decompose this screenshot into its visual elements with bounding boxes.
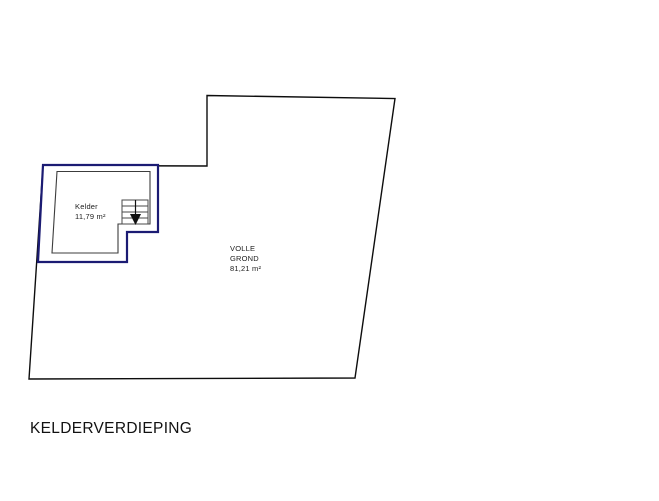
stairs-down-icon — [122, 200, 148, 225]
volle-grond-name-line1: VOLLE — [230, 244, 255, 253]
floorplan-page: Kelder 11,79 m² VOLLE GROND 81,21 m² KEL… — [0, 0, 659, 501]
kelder-area: 11,79 m² — [75, 212, 106, 221]
floorplan-drawing: Kelder 11,79 m² VOLLE GROND 81,21 m² KEL… — [0, 0, 659, 501]
kelder-name: Kelder — [75, 202, 98, 211]
volle-grond-area: 81,21 m² — [230, 264, 261, 273]
floor-title: KELDERVERDIEPING — [30, 420, 192, 437]
volle-grond-name-line2: GROND — [230, 254, 259, 263]
